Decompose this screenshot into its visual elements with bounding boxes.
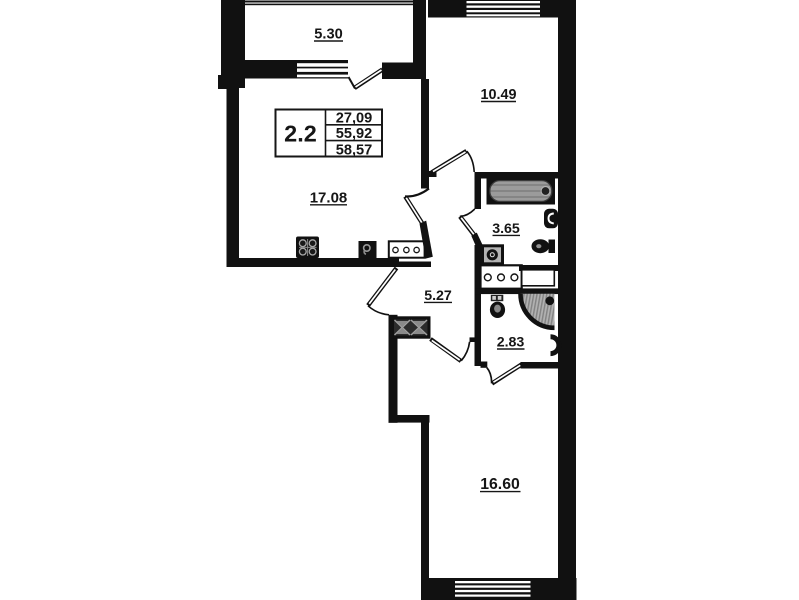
svg-text:17.08: 17.08 <box>310 190 348 207</box>
svg-text:27,09: 27,09 <box>336 110 373 126</box>
svg-text:5.30: 5.30 <box>314 27 342 43</box>
svg-text:16.60: 16.60 <box>480 476 520 493</box>
svg-text:2.2: 2.2 <box>284 121 317 147</box>
svg-text:2.83: 2.83 <box>497 335 525 351</box>
svg-text:10.49: 10.49 <box>480 87 516 103</box>
svg-text:3.65: 3.65 <box>492 221 520 237</box>
svg-text:58,57: 58,57 <box>336 142 373 158</box>
svg-text:55,92: 55,92 <box>336 126 373 142</box>
svg-text:5.27: 5.27 <box>424 288 452 304</box>
